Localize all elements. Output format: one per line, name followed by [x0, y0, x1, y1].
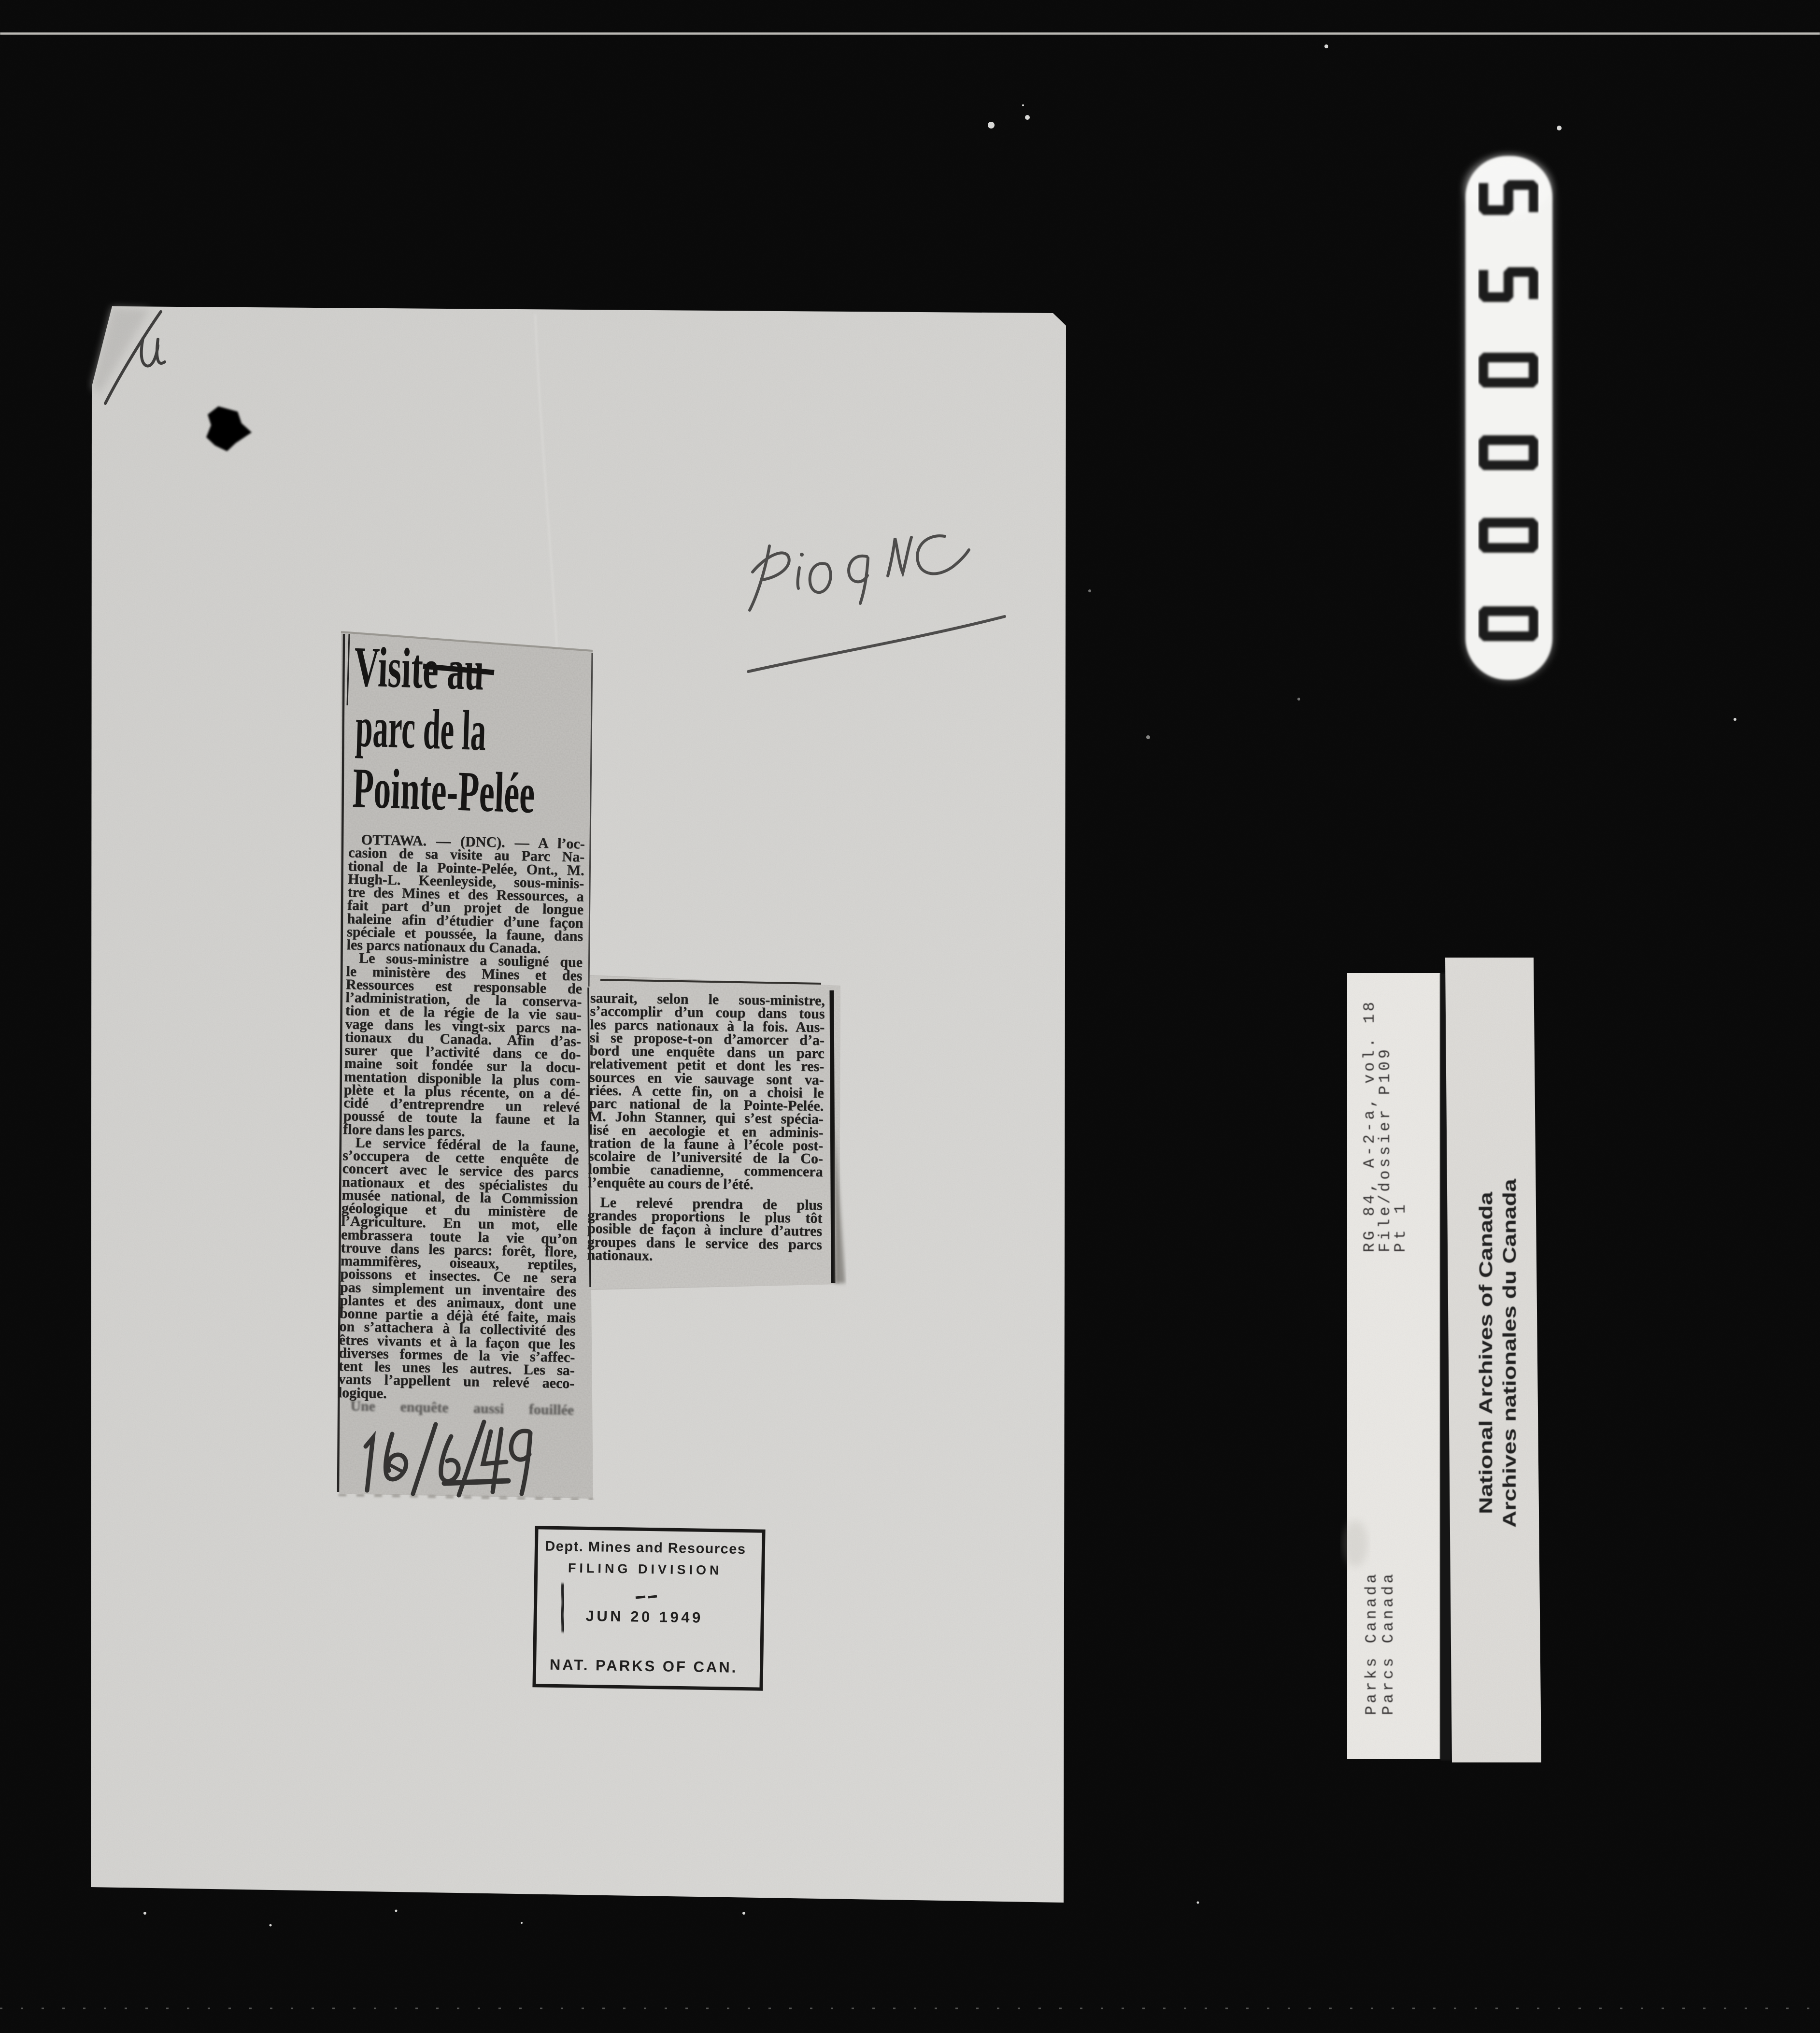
svg-text:Archives nationales du Canada: Archives nationales du Canada [1500, 1178, 1520, 1528]
svg-text:National Archives of Canada: National Archives of Canada [1476, 1191, 1496, 1514]
svg-text:Pointe-Pelée: Pointe-Pelée [352, 757, 536, 825]
svg-text:parc de la: parc de la [355, 695, 487, 763]
